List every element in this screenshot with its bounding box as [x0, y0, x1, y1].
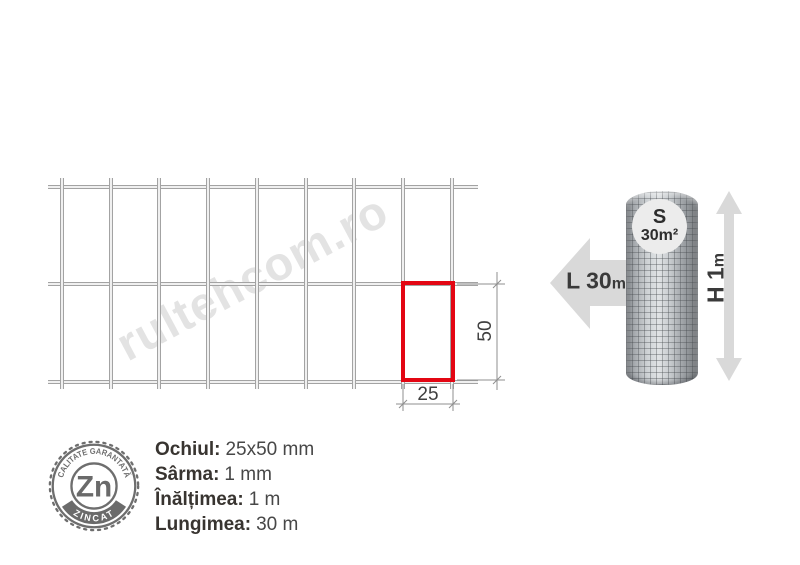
spec-row: Înălțimea:1 m: [155, 487, 314, 512]
badge-element-symbol: Zn: [76, 471, 112, 504]
height-label-unit: m: [711, 253, 728, 267]
dim-width-label: 25: [417, 384, 438, 406]
spec-row: Ochiul:25x50 mm: [155, 437, 314, 462]
spec-list: Ochiul:25x50 mm Sârma:1 mm Înălțimea:1 m…: [155, 437, 314, 537]
spec-row: Lungimea:30 m: [155, 512, 314, 537]
surface-symbol: S: [632, 207, 687, 227]
spec-value: 25x50 mm: [225, 439, 314, 460]
length-label-unit: m: [612, 276, 626, 293]
length-label: L 30m: [566, 268, 626, 295]
surface-badge: S 30m²: [632, 199, 687, 254]
spec-value: 30 m: [256, 514, 298, 535]
height-label-main: H 1: [703, 267, 729, 303]
length-label-main: L 30: [566, 268, 612, 294]
surface-value: 30m²: [632, 227, 687, 245]
zn-quality-badge: CALITATE GARANTATĂ ZINCAT Zn: [46, 438, 142, 534]
spec-value: 1 mm: [224, 464, 272, 485]
spec-label: Sârma:: [155, 464, 219, 485]
spec-label: Ochiul:: [155, 439, 220, 460]
height-label: H 1m: [703, 253, 730, 303]
spec-row: Sârma:1 mm: [155, 462, 314, 487]
spec-label: Lungimea:: [155, 514, 251, 535]
dim-height-label: 50: [475, 320, 497, 341]
spec-label: Înălțimea:: [155, 489, 244, 510]
product-diagram: rultehcom.ro: [0, 0, 800, 565]
spec-value: 1 m: [249, 489, 281, 510]
